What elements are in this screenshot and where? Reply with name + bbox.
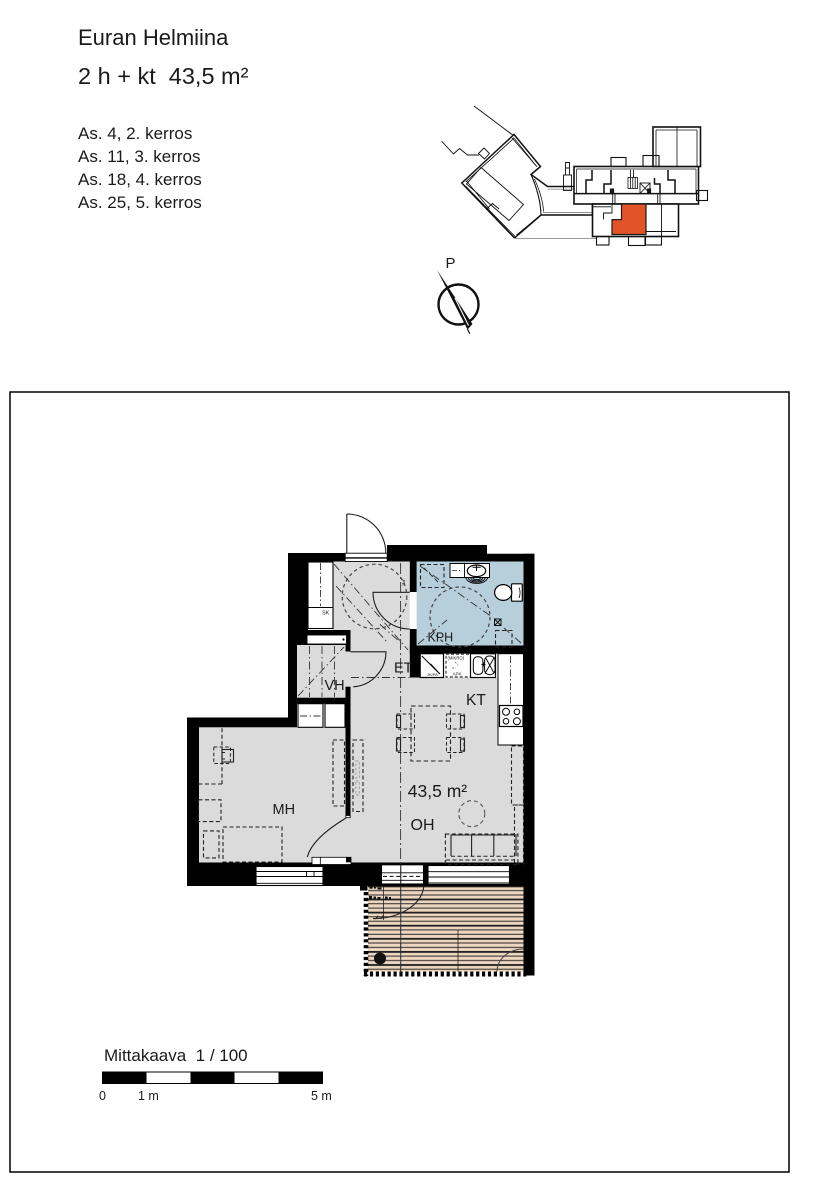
svg-text:P: P xyxy=(446,255,456,272)
svg-text:43,5 m²: 43,5 m² xyxy=(408,781,467,801)
svg-text:MH: MH xyxy=(273,802,296,818)
svg-text:As. 4, 2. kerros: As. 4, 2. kerros xyxy=(78,124,192,143)
svg-text:VH: VH xyxy=(325,678,345,694)
svg-text:Mittakaava 1 / 100: Mittakaava 1 / 100 xyxy=(104,1046,248,1065)
svg-text:Euran Helmiina: Euran Helmiina xyxy=(78,25,229,50)
svg-text:KT: KT xyxy=(466,692,486,709)
svg-text:As. 18, 4. kerros: As. 18, 4. kerros xyxy=(78,170,202,189)
svg-text:SK: SK xyxy=(322,611,330,617)
svg-text:5 m: 5 m xyxy=(311,1089,332,1103)
svg-text:KPH: KPH xyxy=(428,630,454,644)
svg-text:OH: OH xyxy=(411,817,435,834)
svg-text:As. 11, 3. kerros: As. 11, 3. kerros xyxy=(78,147,201,166)
svg-text:2 h + kt 43,5 m²: 2 h + kt 43,5 m² xyxy=(78,63,249,89)
svg-text:1 m: 1 m xyxy=(138,1089,159,1103)
svg-text:JK/PA: JK/PA xyxy=(427,672,438,677)
svg-text:As. 25, 5. kerros: As. 25, 5. kerros xyxy=(78,193,202,212)
svg-text:0: 0 xyxy=(99,1089,106,1103)
svg-text:ET: ET xyxy=(394,661,413,677)
svg-text:APK: APK xyxy=(453,672,462,677)
svg-text:(MIKRO): (MIKRO) xyxy=(448,656,465,661)
